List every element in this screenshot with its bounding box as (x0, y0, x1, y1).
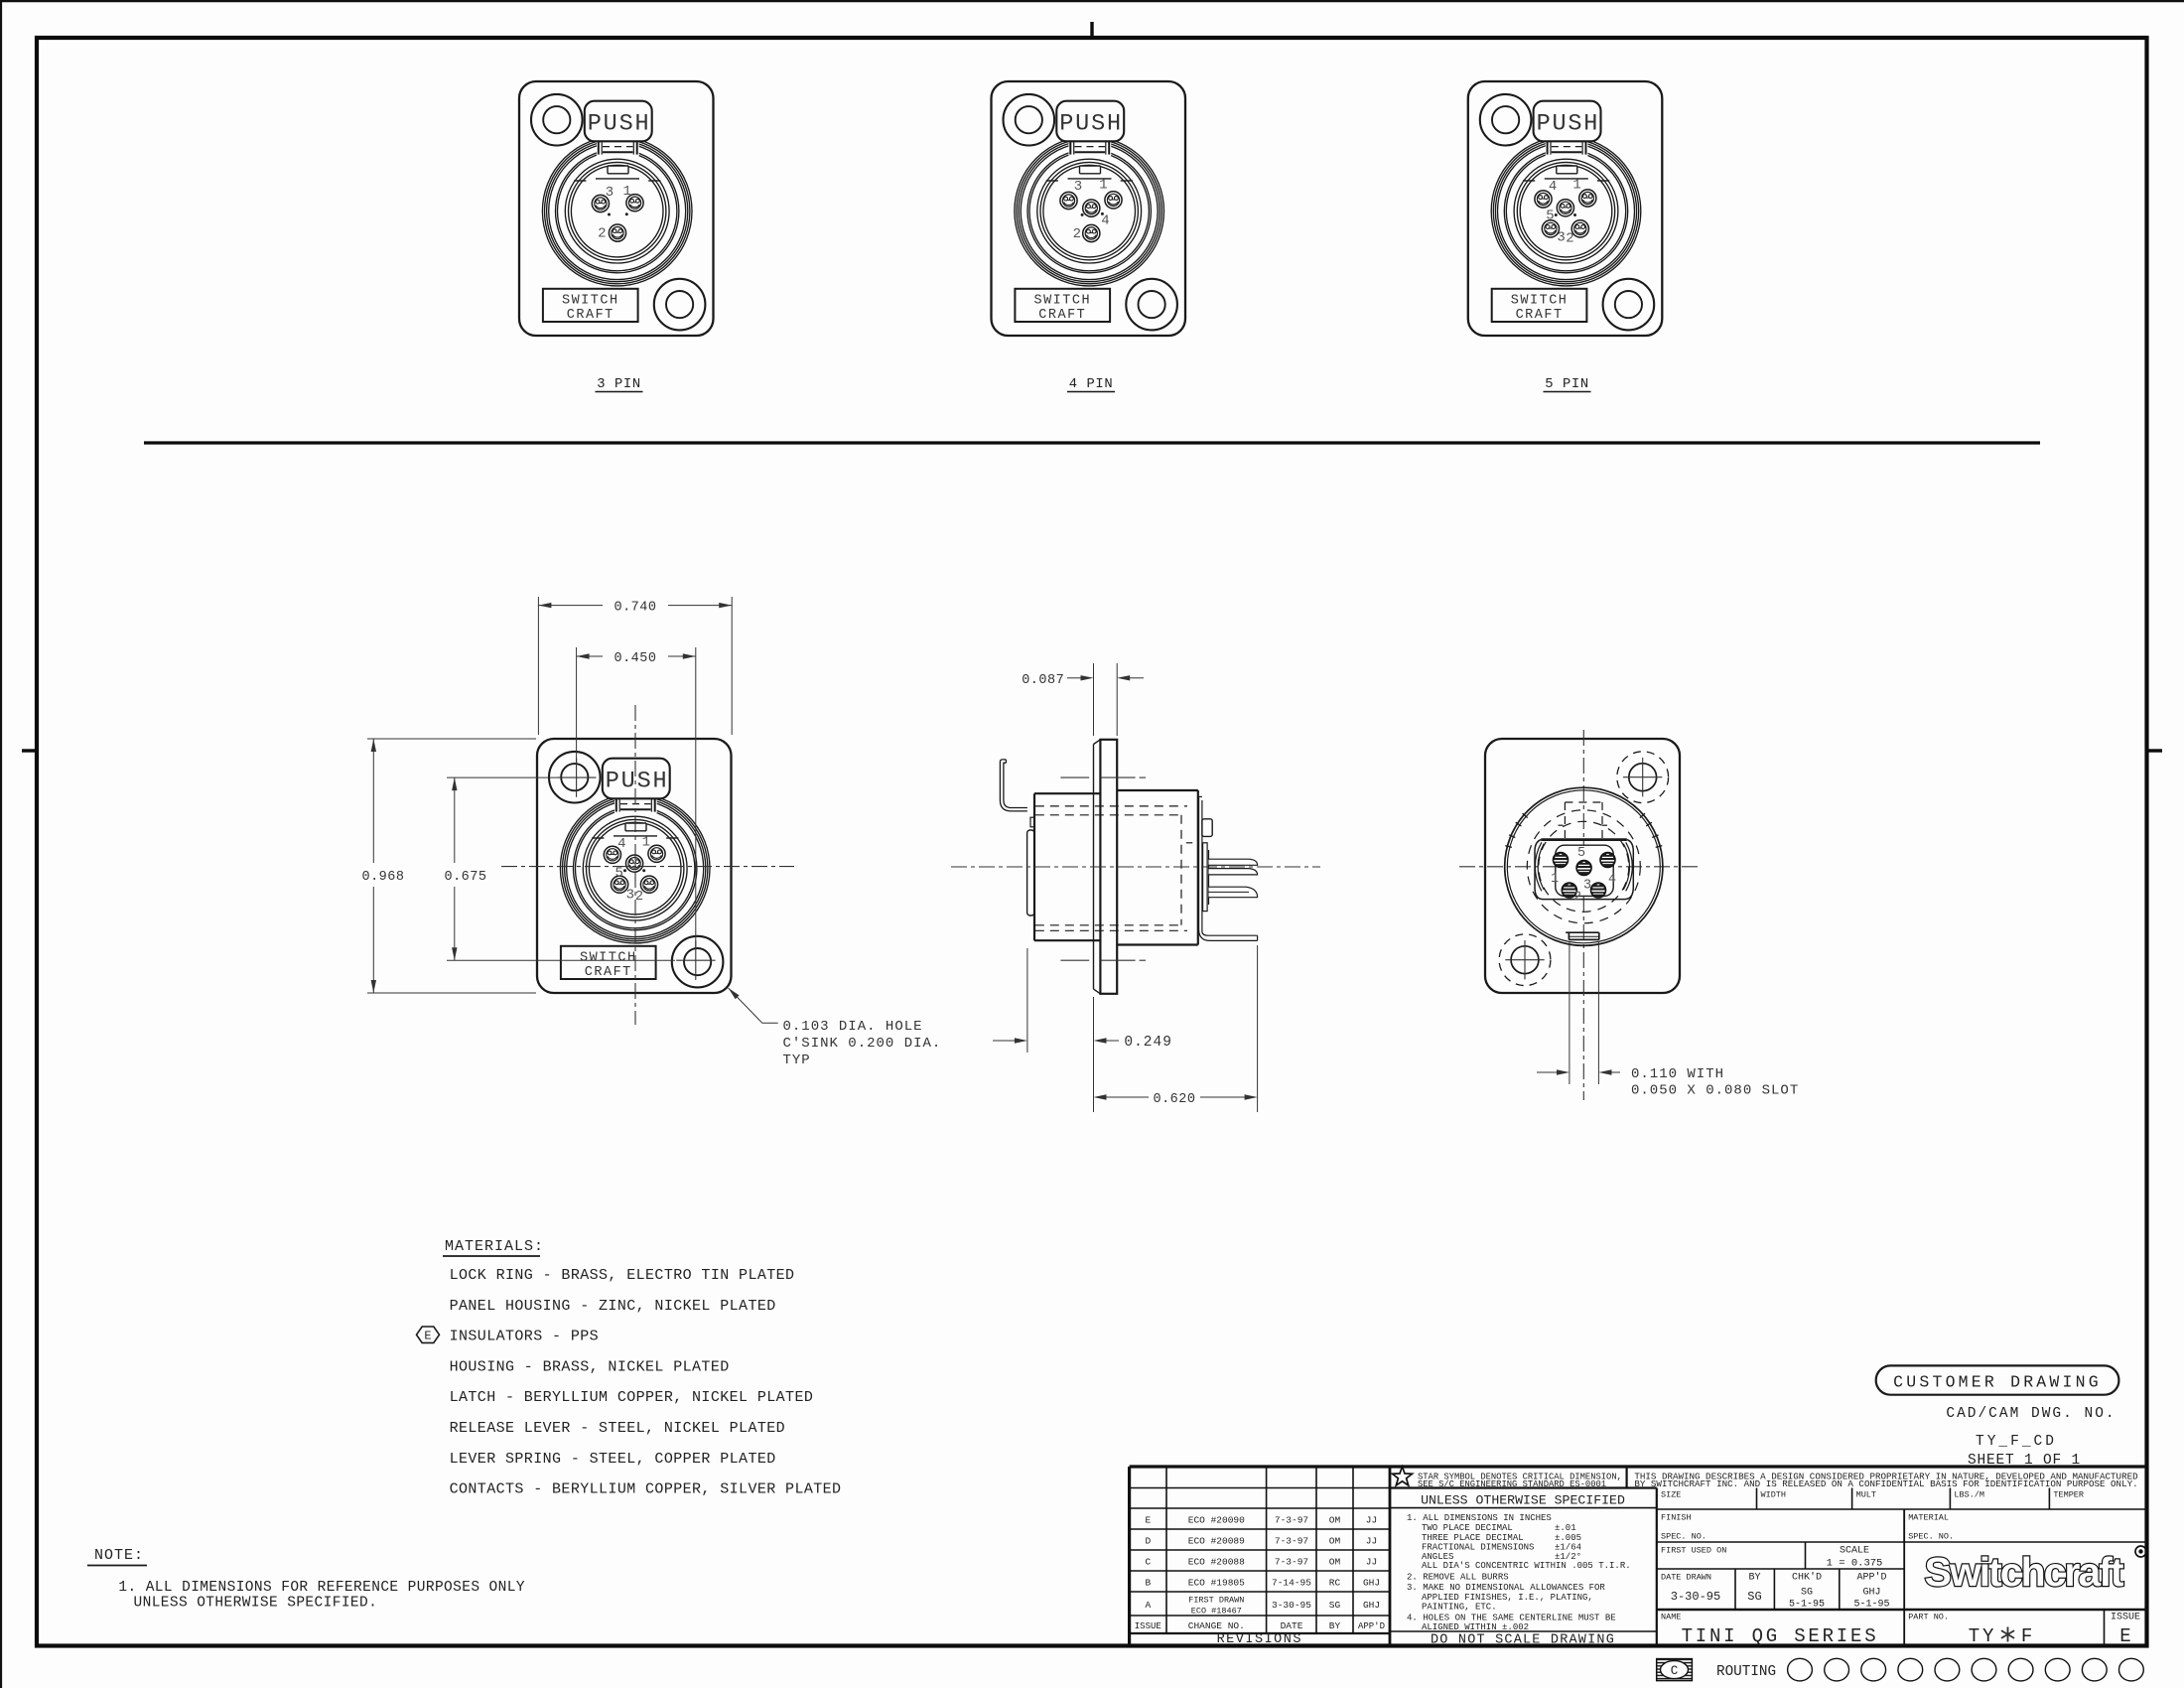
svg-text:Switchcraft: Switchcraft (1925, 1549, 2124, 1595)
svg-text:TEMPER: TEMPER (2053, 1490, 2084, 1500)
svg-text:C'SINK 0.200 DIA.: C'SINK 0.200 DIA. (783, 1036, 942, 1052)
svg-text:INSULATORS - PPS: INSULATORS - PPS (450, 1329, 599, 1345)
svg-text:CHANGE NO.: CHANGE NO. (1188, 1620, 1245, 1631)
svg-text:TY: TY (1969, 1625, 1996, 1647)
svg-text:FIRST USED ON: FIRST USED ON (1661, 1546, 1726, 1556)
svg-text:0.675: 0.675 (444, 870, 486, 885)
svg-text:RC: RC (1329, 1578, 1341, 1589)
svg-text:JJ: JJ (1366, 1557, 1377, 1568)
svg-text:TYP: TYP (783, 1053, 811, 1068)
svg-text:C: C (1671, 1664, 1679, 1678)
svg-text:3: 3 (1557, 229, 1565, 245)
svg-text:APP'D: APP'D (1856, 1572, 1886, 1584)
svg-text:1 = 0.375: 1 = 0.375 (1827, 1558, 1883, 1570)
svg-text:BY SWITCHCRAFT INC. AND IS REL: BY SWITCHCRAFT INC. AND IS RELEASED ON A… (1634, 1478, 2137, 1489)
svg-text:ALL DIA'S CONCENTRIC WITHIN .0: ALL DIA'S CONCENTRIC WITHIN .005 T.I.R. (1422, 1561, 1631, 1571)
svg-text:1: 1 (1572, 177, 1580, 193)
svg-text:3. MAKE NO DIMENSIONAL ALLOWAN: 3. MAKE NO DIMENSIONAL ALLOWANCES FOR (1407, 1583, 1605, 1593)
svg-text:4: 4 (617, 836, 625, 852)
svg-text:MATERIALS:: MATERIALS: (445, 1238, 544, 1255)
svg-text:1: 1 (1551, 872, 1559, 887)
svg-text:TY_F_CD: TY_F_CD (1976, 1434, 2057, 1450)
svg-text:1: 1 (622, 184, 630, 200)
svg-text:FINISH: FINISH (1661, 1513, 1692, 1523)
svg-text:JJ: JJ (1366, 1536, 1377, 1547)
svg-text:SCALE: SCALE (1840, 1546, 1869, 1557)
svg-text:2: 2 (1573, 891, 1581, 906)
svg-text:PANEL HOUSING - ZINC, NICKEL P: PANEL HOUSING - ZINC, NICKEL PLATED (450, 1298, 776, 1315)
svg-text:HOUSING - BRASS, NICKEL PLATED: HOUSING - BRASS, NICKEL PLATED (450, 1358, 730, 1375)
svg-text:F: F (2021, 1625, 2035, 1647)
svg-text:4: 4 (1549, 179, 1557, 195)
svg-text:LATCH - BERYLLIUM COPPER, NICK: LATCH - BERYLLIUM COPPER, NICKEL PLATED (450, 1389, 814, 1406)
svg-text:1: 1 (642, 835, 650, 851)
svg-text:4: 4 (1608, 873, 1616, 888)
svg-text:BY: BY (1748, 1573, 1760, 1584)
svg-text:UNLESS OTHERWISE SPECIFIED.: UNLESS OTHERWISE SPECIFIED. (134, 1596, 378, 1612)
svg-text:WIDTH: WIDTH (1761, 1490, 1787, 1500)
svg-text:TINI QG SERIES: TINI QG SERIES (1682, 1625, 1879, 1647)
svg-text:CAD/CAM DWG. NO.: CAD/CAM DWG. NO. (1946, 1406, 2116, 1422)
svg-text:ECO #19805: ECO #19805 (1188, 1578, 1245, 1589)
svg-text:3: 3 (626, 888, 634, 904)
svg-text:ECO #20088: ECO #20088 (1188, 1557, 1245, 1568)
svg-text:NOTE:: NOTE: (94, 1547, 144, 1564)
svg-text:ECO #18467: ECO #18467 (1191, 1607, 1242, 1617)
svg-text:4: 4 (1101, 213, 1109, 229)
svg-text:LOCK RING - BRASS, ELECTRO TIN: LOCK RING - BRASS, ELECTRO TIN PLATED (450, 1267, 795, 1284)
svg-text:UNLESS OTHERWISE SPECIFIED: UNLESS OTHERWISE SPECIFIED (1421, 1493, 1625, 1508)
svg-text:APPLIED FINISHES, I.E., PLATIN: APPLIED FINISHES, I.E., PLATING, (1422, 1593, 1593, 1603)
svg-text:0.103 DIA. HOLE: 0.103 DIA. HOLE (783, 1019, 923, 1035)
svg-text:PAINTING, ETC.: PAINTING, ETC. (1422, 1603, 1497, 1613)
svg-text:D: D (1145, 1536, 1151, 1547)
svg-text:RELEASE LEVER - STEEL, NICKEL: RELEASE LEVER - STEEL, NICKEL PLATED (450, 1420, 785, 1437)
svg-text:MULT: MULT (1856, 1490, 1876, 1500)
svg-text:APP'D: APP'D (1358, 1621, 1385, 1631)
svg-text:SG: SG (1747, 1590, 1761, 1604)
svg-text:MATERIAL: MATERIAL (1908, 1513, 1949, 1523)
svg-text:2. REMOVE ALL BURRS: 2. REMOVE ALL BURRS (1407, 1573, 1509, 1583)
svg-text:ECO #20090: ECO #20090 (1188, 1515, 1245, 1526)
svg-text:NAME: NAME (1661, 1613, 1681, 1622)
svg-text:2: 2 (1073, 226, 1081, 242)
svg-text:±.005: ±.005 (1555, 1533, 1581, 1543)
svg-text:CHK'D: CHK'D (1792, 1572, 1822, 1584)
svg-text:B: B (1145, 1578, 1151, 1589)
svg-text:4 PIN: 4 PIN (1069, 377, 1113, 392)
svg-text:GHJ: GHJ (1363, 1578, 1380, 1589)
svg-text:DO NOT SCALE DRAWING: DO NOT SCALE DRAWING (1431, 1633, 1615, 1648)
svg-text:0.968: 0.968 (361, 870, 404, 885)
svg-text:FIRST DRAWN: FIRST DRAWN (1188, 1596, 1244, 1606)
svg-text:3: 3 (1074, 179, 1082, 195)
svg-text:±1/2°: ±1/2° (1555, 1552, 1581, 1562)
svg-text:0.620: 0.620 (1153, 1092, 1195, 1107)
svg-text:±1/64: ±1/64 (1555, 1543, 1581, 1553)
svg-text:E: E (424, 1330, 431, 1343)
svg-text:GHJ: GHJ (1363, 1600, 1380, 1611)
svg-text:1: 1 (1099, 177, 1107, 193)
svg-text:2: 2 (598, 225, 606, 241)
svg-text:3 PIN: 3 PIN (597, 377, 640, 392)
svg-text:C: C (1145, 1557, 1151, 1568)
svg-text:CONTACTS - BERYLLIUM COPPER, S: CONTACTS - BERYLLIUM COPPER, SILVER PLAT… (450, 1481, 842, 1498)
svg-text:±.01: ±.01 (1555, 1523, 1576, 1533)
svg-text:7-14-95: 7-14-95 (1272, 1578, 1311, 1589)
svg-text:DATE: DATE (1281, 1620, 1303, 1631)
svg-text:LEVER SPRING - STEEL, COPPER P: LEVER SPRING - STEEL, COPPER PLATED (450, 1451, 776, 1468)
svg-text:BY: BY (1329, 1620, 1341, 1631)
svg-text:3-30-95: 3-30-95 (1272, 1600, 1311, 1611)
svg-text:JJ: JJ (1366, 1515, 1377, 1526)
svg-text:5-1-95: 5-1-95 (1789, 1600, 1825, 1611)
svg-text:5: 5 (614, 866, 622, 882)
svg-text:SG: SG (1329, 1600, 1341, 1611)
svg-text:ROUTING: ROUTING (1716, 1664, 1776, 1680)
svg-text:1. ALL DIMENSIONS IN INCHES: 1. ALL DIMENSIONS IN INCHES (1407, 1513, 1552, 1523)
svg-text:7-3-97: 7-3-97 (1275, 1515, 1308, 1526)
svg-text:DATE DRAWN: DATE DRAWN (1661, 1573, 1711, 1583)
svg-text:1. ALL DIMENSIONS FOR REFERENC: 1. ALL DIMENSIONS FOR REFERENCE PURPOSES… (118, 1580, 525, 1596)
svg-text:LBS./M: LBS./M (1954, 1490, 1984, 1500)
svg-text:SPEC. NO.: SPEC. NO. (1908, 1532, 1954, 1542)
svg-text:OM: OM (1329, 1536, 1341, 1547)
svg-text:5-1-95: 5-1-95 (1853, 1600, 1889, 1611)
svg-text:0.087: 0.087 (1022, 673, 1064, 688)
svg-text:4. HOLES ON THE SAME CENTERLIN: 4. HOLES ON THE SAME CENTERLINE MUST BE (1407, 1614, 1616, 1623)
svg-text:0.249: 0.249 (1124, 1035, 1172, 1051)
svg-text:ISSUE: ISSUE (2111, 1613, 2140, 1623)
svg-text:REVISIONS: REVISIONS (1217, 1632, 1302, 1647)
svg-text:FRACTIONAL DIMENSIONS: FRACTIONAL DIMENSIONS (1422, 1543, 1534, 1553)
svg-text:CUSTOMER DRAWING: CUSTOMER DRAWING (1893, 1373, 2102, 1392)
svg-text:5: 5 (1546, 208, 1554, 223)
svg-text:SEE S/C ENGINEERING STANDARD E: SEE S/C ENGINEERING STANDARD ES-0001 (1418, 1479, 1606, 1489)
svg-text:E: E (1145, 1515, 1151, 1526)
svg-text:2: 2 (635, 889, 643, 905)
svg-text:TWO PLACE DECIMAL: TWO PLACE DECIMAL (1422, 1523, 1513, 1533)
svg-text:5 PIN: 5 PIN (1545, 377, 1588, 392)
svg-text:ISSUE: ISSUE (1135, 1621, 1161, 1631)
svg-text:OM: OM (1329, 1515, 1341, 1526)
svg-text:SIZE: SIZE (1661, 1490, 1681, 1500)
svg-text:THREE PLACE DECIMAL: THREE PLACE DECIMAL (1422, 1533, 1524, 1543)
svg-text:2: 2 (1566, 231, 1573, 247)
svg-text:E: E (2119, 1625, 2130, 1647)
svg-text:SPEC. NO.: SPEC. NO. (1661, 1532, 1706, 1542)
svg-text:5: 5 (1577, 846, 1585, 861)
svg-text:3-30-95: 3-30-95 (1671, 1590, 1720, 1604)
svg-text:3: 3 (606, 185, 614, 201)
svg-text:ECO #20089: ECO #20089 (1188, 1536, 1245, 1547)
svg-text:A: A (1145, 1600, 1151, 1611)
svg-text:OM: OM (1329, 1557, 1341, 1568)
svg-text:SG: SG (1801, 1588, 1813, 1599)
svg-text:3: 3 (1583, 879, 1591, 894)
svg-text:7-3-97: 7-3-97 (1275, 1536, 1308, 1547)
svg-text:0.110 WITH: 0.110 WITH (1631, 1066, 1724, 1082)
svg-text:7-3-97: 7-3-97 (1275, 1557, 1308, 1568)
svg-text:PART NO.: PART NO. (1908, 1613, 1949, 1622)
svg-text:0.450: 0.450 (614, 651, 656, 666)
svg-text:0.050 X 0.080 SLOT: 0.050 X 0.080 SLOT (1631, 1083, 1799, 1099)
svg-text:GHJ: GHJ (1862, 1588, 1880, 1599)
svg-text:0.740: 0.740 (614, 601, 656, 616)
